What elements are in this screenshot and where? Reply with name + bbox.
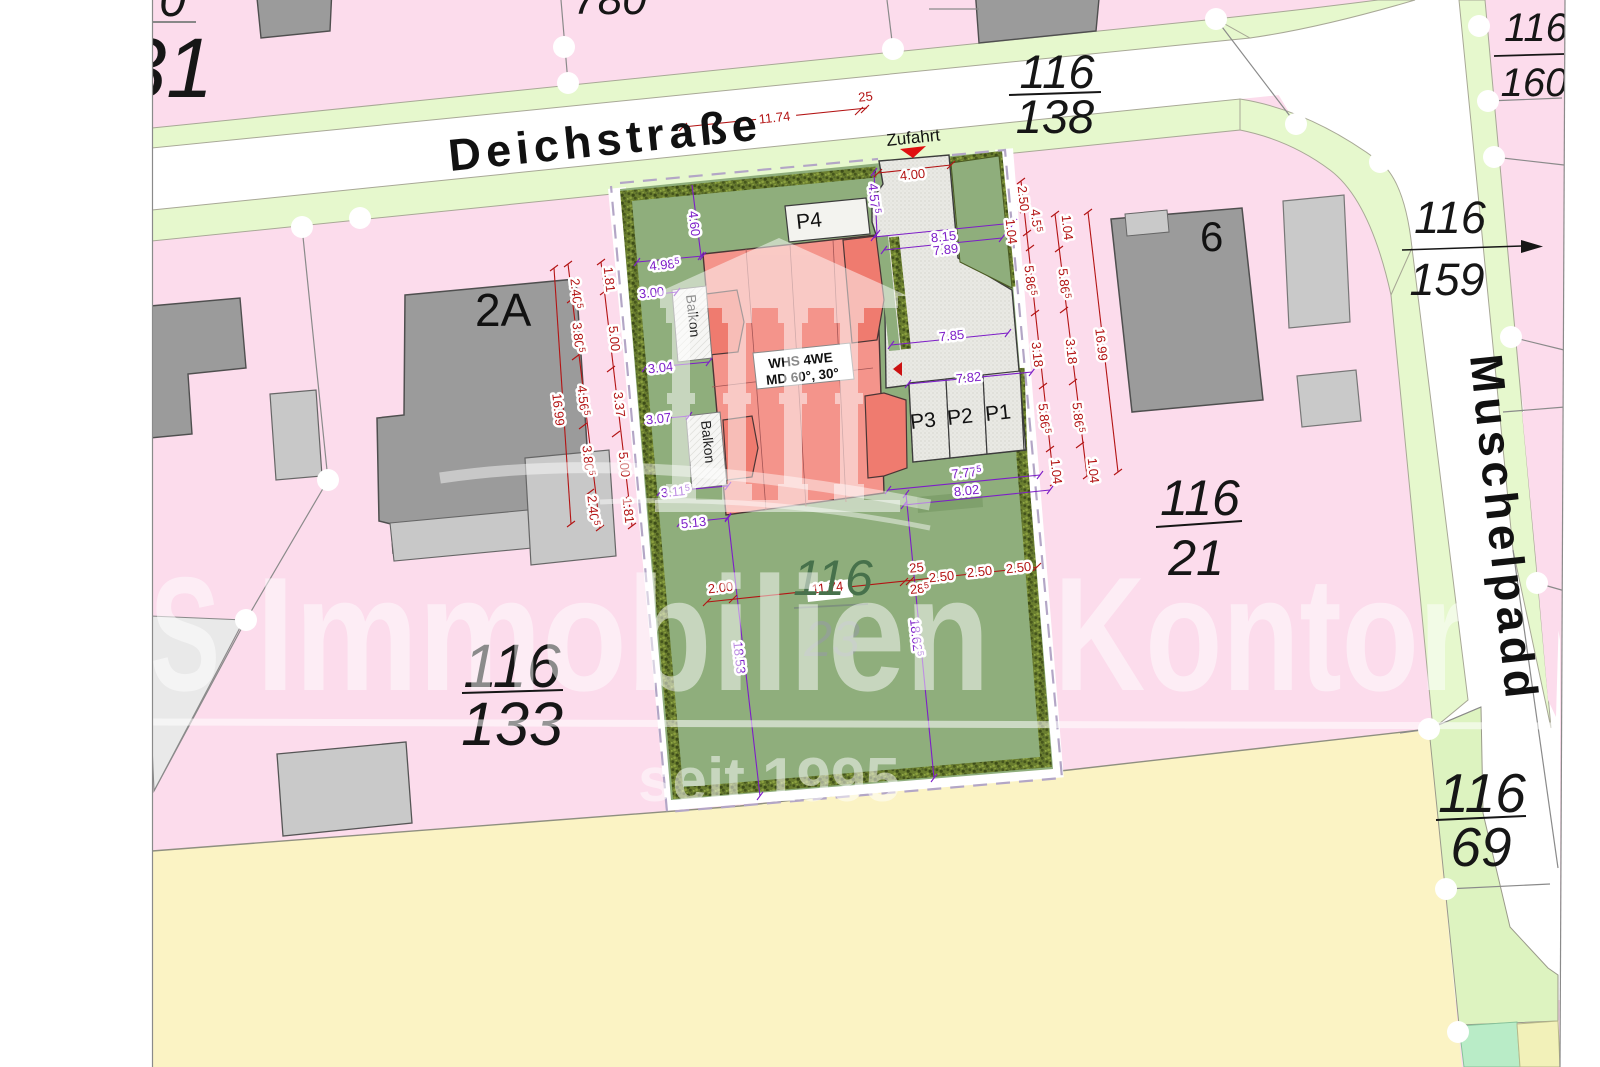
svg-text:7.89: 7.89 (932, 241, 959, 259)
svg-text:25: 25 (858, 88, 874, 104)
svg-text:1.04: 1.04 (1059, 214, 1077, 241)
svg-text:S: S (150, 545, 220, 726)
svg-text:5.00: 5.00 (606, 325, 624, 352)
svg-text:1.04: 1.04 (1048, 458, 1066, 485)
svg-text:Kontor: Kontor (1054, 545, 1468, 726)
svg-text:1.04: 1.04 (1085, 457, 1103, 484)
svg-text:seit 1995: seit 1995 (638, 746, 900, 815)
svg-text:116: 116 (1414, 192, 1487, 243)
svg-text:P1: P1 (984, 400, 1012, 426)
svg-text:116: 116 (1160, 470, 1240, 526)
svg-text:3.18: 3.18 (1029, 341, 1047, 368)
svg-text:2A: 2A (475, 284, 532, 336)
svg-text:6: 6 (1200, 213, 1223, 260)
svg-text:116: 116 (1504, 6, 1569, 50)
svg-text:138: 138 (1016, 90, 1094, 143)
svg-text:5.13: 5.13 (680, 514, 707, 532)
svg-text:8.02: 8.02 (953, 482, 980, 500)
svg-text:P4: P4 (795, 208, 823, 234)
svg-text:7.85: 7.85 (938, 327, 965, 345)
svg-text:7.82: 7.82 (955, 369, 982, 387)
svg-text:2.50: 2.50 (1005, 559, 1032, 577)
svg-text:P2: P2 (946, 404, 974, 430)
svg-text:3.07: 3.07 (645, 410, 672, 428)
svg-text:1.04: 1.04 (1003, 218, 1021, 245)
svg-text:159: 159 (1409, 254, 1484, 305)
svg-text:Immobilien: Immobilien (256, 545, 990, 726)
svg-text:780: 780 (573, 0, 647, 24)
svg-text:P3: P3 (909, 408, 937, 434)
svg-text:69: 69 (1450, 816, 1511, 878)
svg-text:160: 160 (1501, 61, 1568, 105)
svg-text:3.37: 3.37 (611, 391, 629, 418)
svg-text:3.04: 3.04 (647, 359, 674, 377)
svg-text:4.00: 4.00 (899, 166, 926, 184)
svg-text:116: 116 (1438, 762, 1526, 824)
svg-text:2.50: 2.50 (1015, 185, 1033, 212)
svg-text:3.18: 3.18 (1063, 338, 1081, 365)
svg-text:4.60: 4.60 (686, 210, 704, 237)
svg-text:1.81: 1.81 (601, 266, 619, 293)
